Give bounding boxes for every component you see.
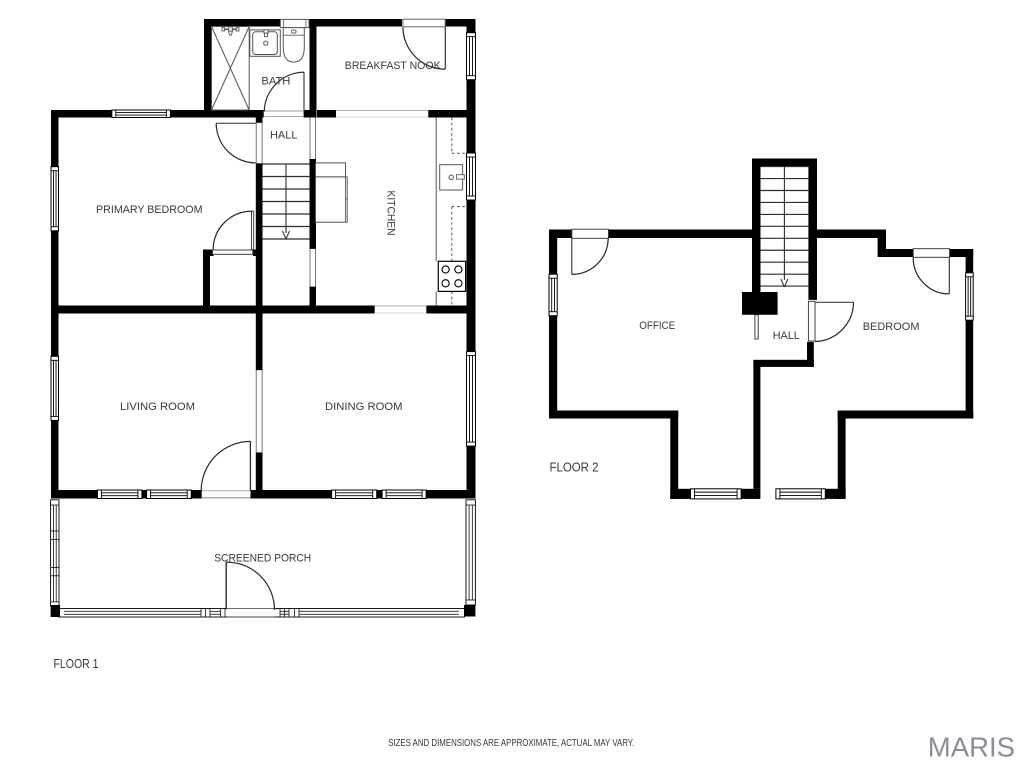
svg-text:HALL: HALL bbox=[270, 129, 298, 141]
svg-text:FLOOR 1: FLOOR 1 bbox=[54, 657, 99, 671]
svg-text:LIVING ROOM: LIVING ROOM bbox=[120, 401, 195, 413]
svg-text:FLOOR 2: FLOOR 2 bbox=[550, 461, 599, 475]
svg-text:PRIMARY BEDROOM: PRIMARY BEDROOM bbox=[96, 204, 203, 216]
svg-text:SIZES AND DIMENSIONS ARE APPRO: SIZES AND DIMENSIONS ARE APPROXIMATE, AC… bbox=[388, 737, 634, 749]
svg-text:SCREENED PORCH: SCREENED PORCH bbox=[214, 552, 311, 564]
svg-text:MARIS: MARIS bbox=[928, 732, 1015, 763]
svg-text:KITCHEN: KITCHEN bbox=[385, 191, 397, 236]
svg-text:OFFICE: OFFICE bbox=[639, 320, 675, 332]
svg-text:BEDROOM: BEDROOM bbox=[863, 321, 920, 333]
svg-text:HALL: HALL bbox=[773, 330, 800, 342]
svg-text:BATH: BATH bbox=[261, 76, 290, 88]
svg-text:DINING ROOM: DINING ROOM bbox=[325, 401, 403, 413]
svg-text:BREAKFAST NOOK: BREAKFAST NOOK bbox=[345, 60, 441, 72]
